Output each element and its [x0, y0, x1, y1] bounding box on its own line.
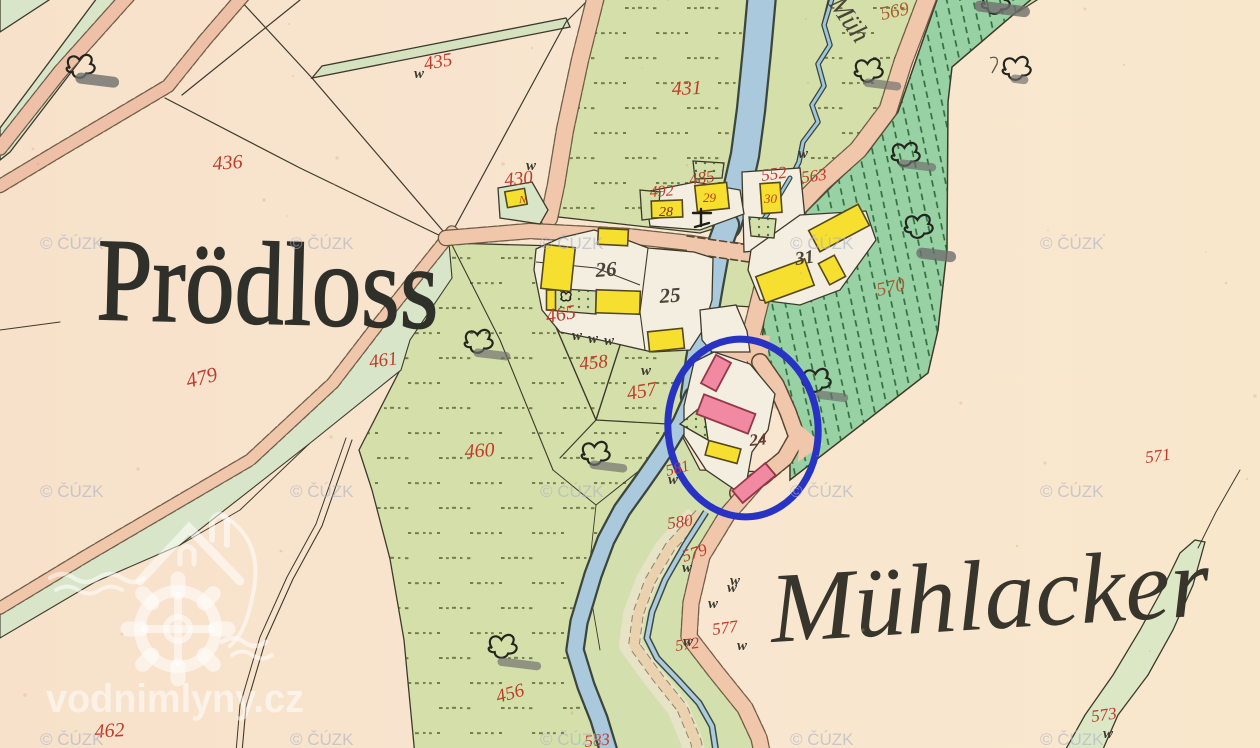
svg-text:24: 24: [747, 429, 767, 450]
svg-text:© ČÚZK: © ČÚZK: [290, 482, 354, 501]
svg-text:© ČÚZK: © ČÚZK: [790, 730, 854, 748]
svg-text:w: w: [526, 158, 537, 174]
svg-text:492: 492: [649, 182, 674, 201]
svg-text:431: 431: [671, 77, 702, 100]
svg-text:© ČÚZK: © ČÚZK: [290, 730, 354, 748]
svg-text:485: 485: [688, 167, 716, 189]
svg-text:© ČÚZK: © ČÚZK: [790, 482, 854, 501]
svg-text:vodnimlyny.cz: vodnimlyny.cz: [46, 677, 304, 721]
svg-text:563: 563: [800, 165, 828, 187]
svg-text:w: w: [588, 331, 599, 347]
svg-text:w: w: [708, 596, 719, 612]
svg-text:© ČÚZK: © ČÚZK: [1040, 730, 1104, 748]
svg-text:29: 29: [703, 190, 717, 205]
svg-text:w: w: [604, 333, 615, 349]
svg-text:26: 26: [594, 257, 618, 283]
svg-text:571: 571: [1144, 445, 1172, 467]
svg-text:© ČÚZK: © ČÚZK: [40, 730, 104, 748]
svg-text:© ČÚZK: © ČÚZK: [540, 482, 604, 501]
svg-text:w: w: [1103, 726, 1114, 742]
svg-text:w: w: [730, 573, 741, 589]
svg-text:577: 577: [711, 616, 740, 639]
svg-text:436: 436: [212, 151, 243, 175]
svg-text:© ČÚZK: © ČÚZK: [1040, 234, 1104, 253]
svg-text:25: 25: [658, 283, 682, 308]
svg-text:© ČÚZK: © ČÚZK: [790, 234, 854, 253]
svg-text:© ČÚZK: © ČÚZK: [540, 730, 604, 748]
svg-text:Prödloss: Prödloss: [95, 214, 440, 354]
svg-text:N: N: [518, 194, 527, 206]
svg-text:w: w: [414, 66, 425, 82]
svg-text:© ČÚZK: © ČÚZK: [1040, 482, 1104, 501]
svg-text:w: w: [682, 560, 693, 576]
svg-text:w: w: [641, 363, 652, 379]
svg-text:580: 580: [666, 511, 694, 533]
svg-text:w: w: [798, 146, 809, 162]
svg-text:w: w: [668, 472, 679, 488]
svg-text:w: w: [572, 328, 583, 344]
svg-text:w: w: [737, 638, 748, 654]
svg-text:© ČÚZK: © ČÚZK: [40, 234, 104, 253]
svg-text:28: 28: [659, 205, 673, 220]
svg-text:© ČÚZK: © ČÚZK: [540, 234, 604, 253]
svg-text:460: 460: [464, 439, 495, 463]
svg-text:573: 573: [1090, 704, 1118, 726]
svg-text:© ČÚZK: © ČÚZK: [290, 234, 354, 253]
svg-text:458: 458: [578, 351, 609, 375]
svg-text:552: 552: [760, 163, 788, 185]
svg-text:w: w: [683, 634, 694, 650]
svg-text:© ČÚZK: © ČÚZK: [40, 482, 104, 501]
svg-text:30: 30: [763, 191, 778, 206]
